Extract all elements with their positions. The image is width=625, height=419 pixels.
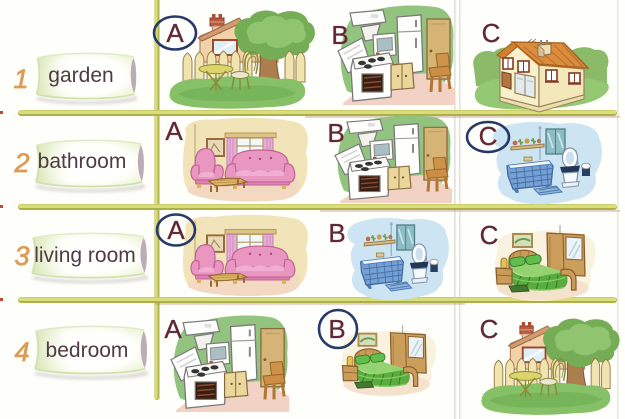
svg-text:bedroom: bedroom (46, 339, 129, 362)
svg-text:3: 3 (14, 241, 29, 271)
svg-text:garden: garden (48, 64, 113, 87)
svg-text:B: B (328, 218, 345, 248)
svg-text:A: A (164, 314, 182, 344)
svg-text:C: C (480, 220, 499, 250)
svg-text:C: C (479, 121, 498, 151)
svg-text:A: A (166, 18, 184, 48)
svg-text:B: B (327, 118, 344, 148)
svg-text:B: B (328, 314, 345, 344)
svg-text:A: A (165, 116, 183, 146)
svg-text:A: A (167, 215, 185, 245)
svg-text:C: C (480, 314, 499, 344)
svg-text:bathroom: bathroom (38, 150, 127, 173)
svg-text:C: C (482, 18, 501, 48)
svg-text:B: B (331, 20, 348, 50)
svg-text:2: 2 (13, 148, 29, 178)
svg-text:4: 4 (14, 337, 29, 367)
svg-text:living room: living room (34, 244, 136, 267)
svg-text:1: 1 (13, 64, 28, 94)
